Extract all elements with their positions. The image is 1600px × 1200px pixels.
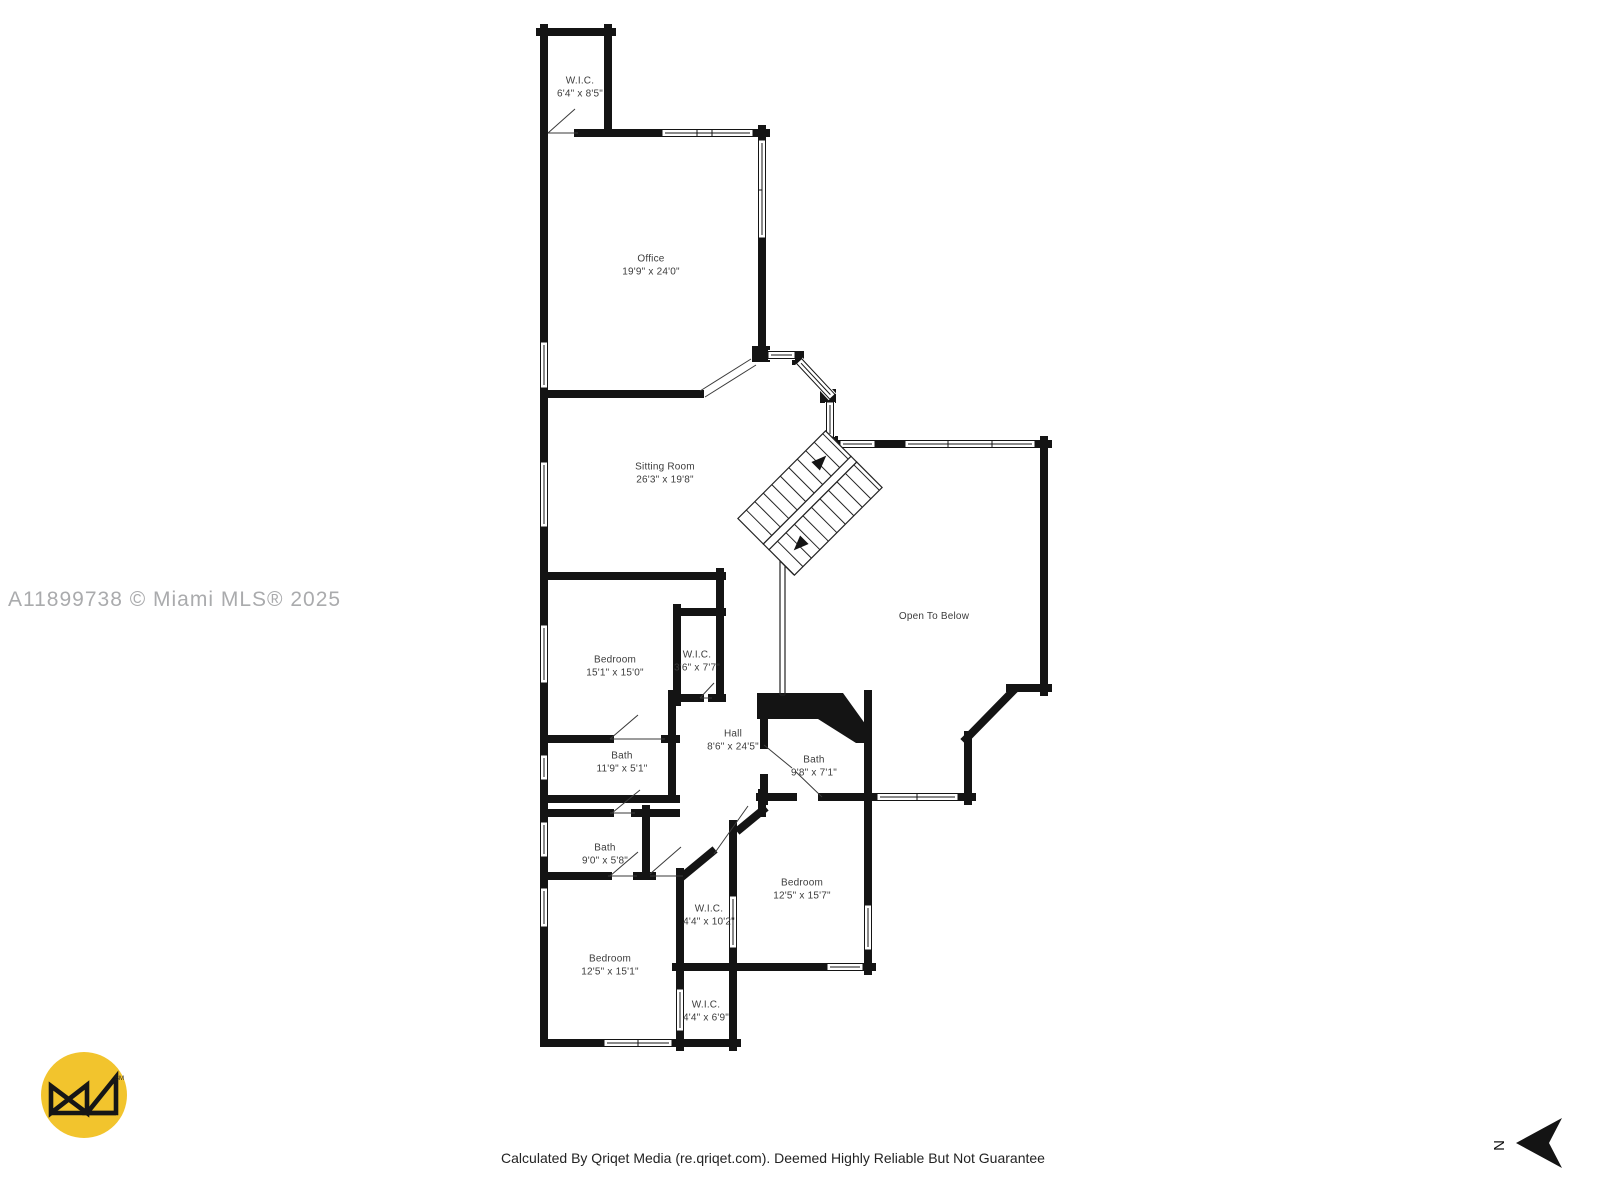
stair-railing [780,560,794,695]
room-label-wic-3: W.I.C. 4'4" x 10'2" [683,904,735,929]
room-label-wic-2: W.I.C. 3'6" x 7'7" [674,650,720,675]
room-name: Open To Below [899,611,969,624]
room-dims: 4'4" x 10'2" [683,916,735,929]
footer-caption: Calculated By Qriqet Media (re.qriqet.co… [501,1150,1045,1166]
room-name: W.I.C. [674,650,720,663]
room-label-office: Office 19'9" x 24'0" [622,254,679,279]
room-name: W.I.C. [683,904,735,917]
room-name: Sitting Room [635,462,695,475]
room-name: Bath [791,755,837,768]
room-name: Bath [582,843,628,856]
room-dims: 12'5" x 15'7" [773,890,830,903]
room-label-wic-top: W.I.C. 6'4" x 8'5" [557,76,603,101]
room-dims: 19'9" x 24'0" [622,266,679,279]
compass-north-letter: N [1491,1140,1508,1151]
room-name: W.I.C. [683,1000,729,1013]
staircase [738,431,882,575]
room-label-bedroom-3: Bedroom 12'5" x 15'1" [581,954,638,979]
room-label-bedroom-1: Bedroom 15'1" x 15'0" [586,655,643,680]
room-name: Bedroom [773,878,830,891]
room-dims: 6'4" x 8'5" [557,88,603,101]
room-label-sitting-room: Sitting Room 26'3" x 19'8" [635,462,695,487]
room-dims: 26'3" x 19'8" [635,474,695,487]
room-label-bath-3: Bath 9'0" x 5'8" [582,843,628,868]
room-label-bedroom-2: Bedroom 12'5" x 15'7" [773,878,830,903]
brand-logo-icon [41,1052,127,1138]
room-name: Bedroom [581,954,638,967]
floor-plan-page: W.I.C. 6'4" x 8'5" Office 19'9" x 24'0" … [0,0,1600,1200]
room-name: Hall [707,729,759,742]
bay-window [795,358,836,401]
windows [539,128,1035,1048]
room-dims: 15'1" x 15'0" [586,667,643,680]
room-label-wic-4: W.I.C. 4'4" x 6'9" [683,1000,729,1025]
room-dims: 3'6" x 7'7" [674,662,720,675]
room-dims: 11'9" x 5'1" [597,763,648,776]
room-dims: 4'4" x 6'9" [683,1012,729,1025]
room-label-open-to-below: Open To Below [899,611,969,624]
room-dims: 12'5" x 15'1" [581,966,638,979]
room-label-bath-1: Bath 11'9" x 5'1" [597,751,648,776]
room-label-bath-2: Bath 9'8" x 7'1" [791,755,837,780]
room-dims: 9'8" x 7'1" [791,767,837,780]
mls-watermark: A11899738 © Miami MLS® 2025 [8,588,341,612]
room-name: Bath [597,751,648,764]
compass-arrow-icon [1516,1118,1562,1168]
room-dims: 9'0" x 5'8" [582,855,628,868]
room-name: W.I.C. [557,76,603,89]
room-name: Bedroom [586,655,643,668]
room-label-hall: Hall 8'6" x 24'5" [707,729,759,754]
room-name: Office [622,254,679,267]
room-dims: 8'6" x 24'5" [707,741,759,754]
logo-trademark: SM [115,1076,124,1082]
